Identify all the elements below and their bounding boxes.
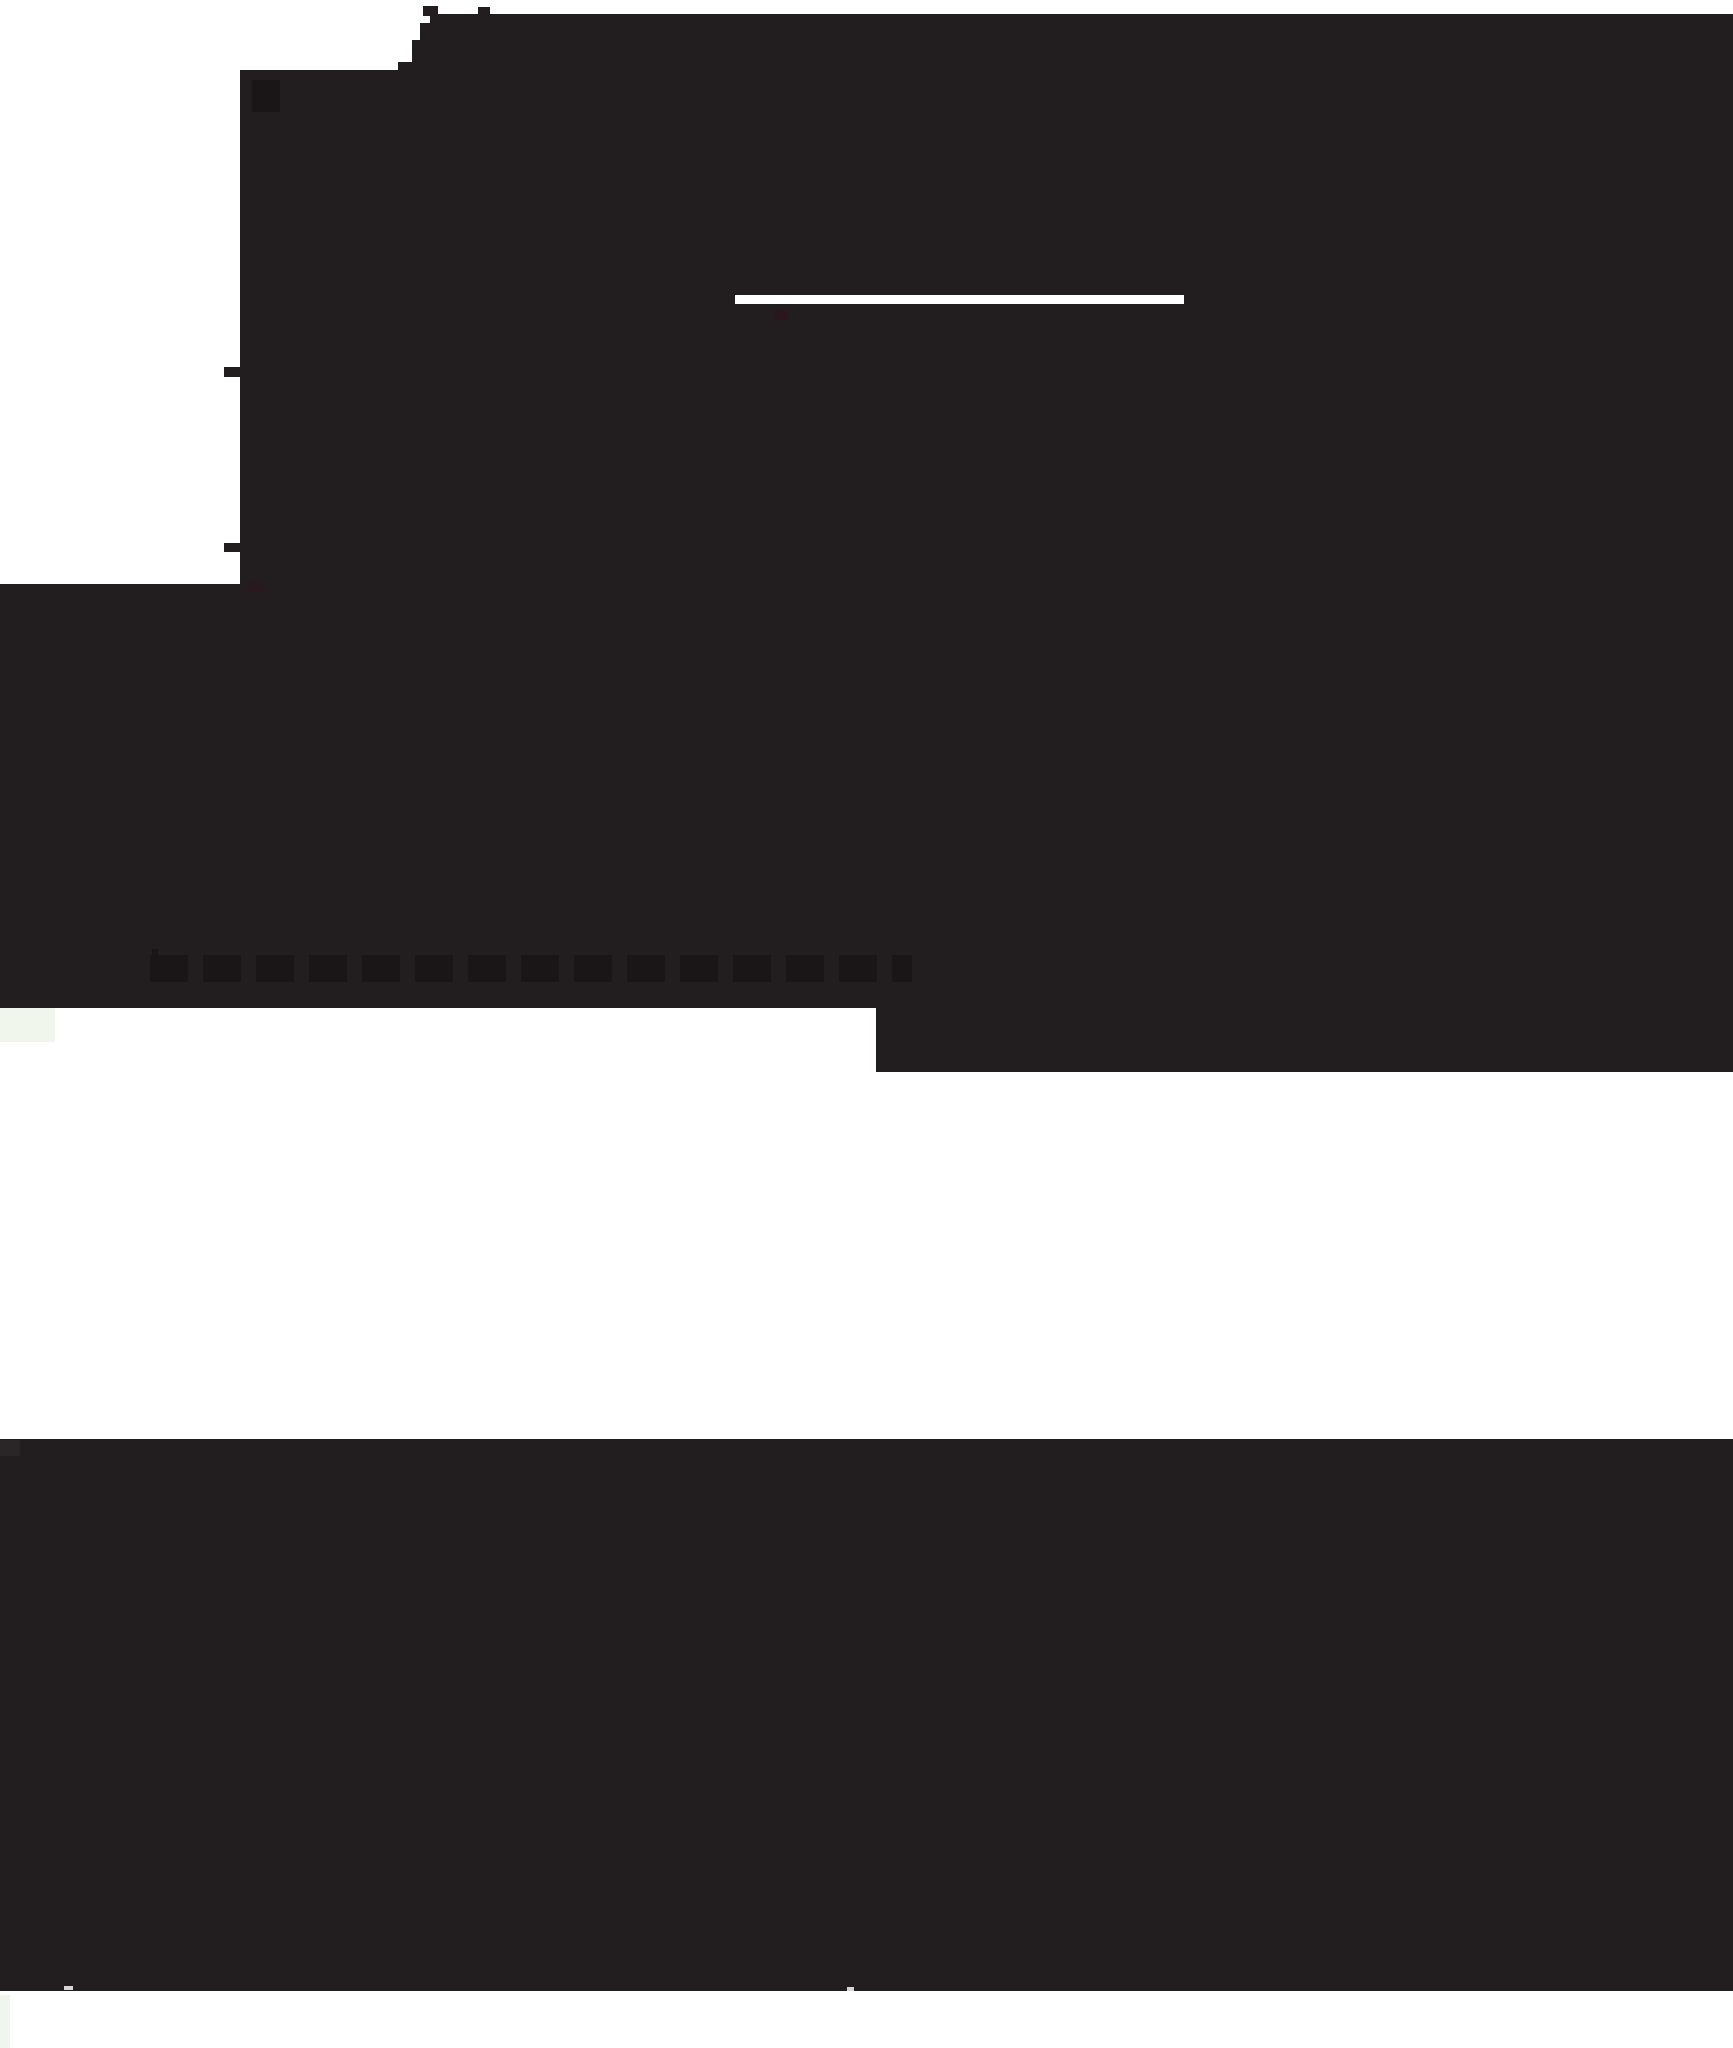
hero-left-flood <box>0 584 240 1008</box>
hero-step-2 <box>412 40 1733 63</box>
red-artifact-corner <box>247 582 263 593</box>
left-tick-1 <box>224 367 240 377</box>
footer-dash-left <box>64 1986 73 1990</box>
ghost-text-row <box>150 955 912 982</box>
footer-band <box>0 1439 1733 1991</box>
page-canvas <box>0 0 1733 2048</box>
left-tick-2 <box>224 543 240 552</box>
divider-line <box>735 295 1184 304</box>
hero-tab-2 <box>478 7 490 16</box>
hero-bottom-right-extension <box>876 1006 1733 1072</box>
hero-step-3 <box>420 23 1733 41</box>
ghost-logo <box>0 1008 55 1042</box>
red-artifact-dot <box>773 310 789 320</box>
hero-glyph-artifact <box>252 80 280 112</box>
hero-tab-1 <box>423 6 438 16</box>
hero-block-main <box>240 70 1733 1008</box>
footer-chip <box>0 1440 20 1456</box>
ghost-text-row-cap <box>152 949 158 982</box>
footer-dot-right <box>847 1987 854 1991</box>
hero-step-4 <box>430 14 1733 24</box>
left-edge-speckle <box>0 1995 10 2048</box>
hero-step-1 <box>398 62 1733 71</box>
